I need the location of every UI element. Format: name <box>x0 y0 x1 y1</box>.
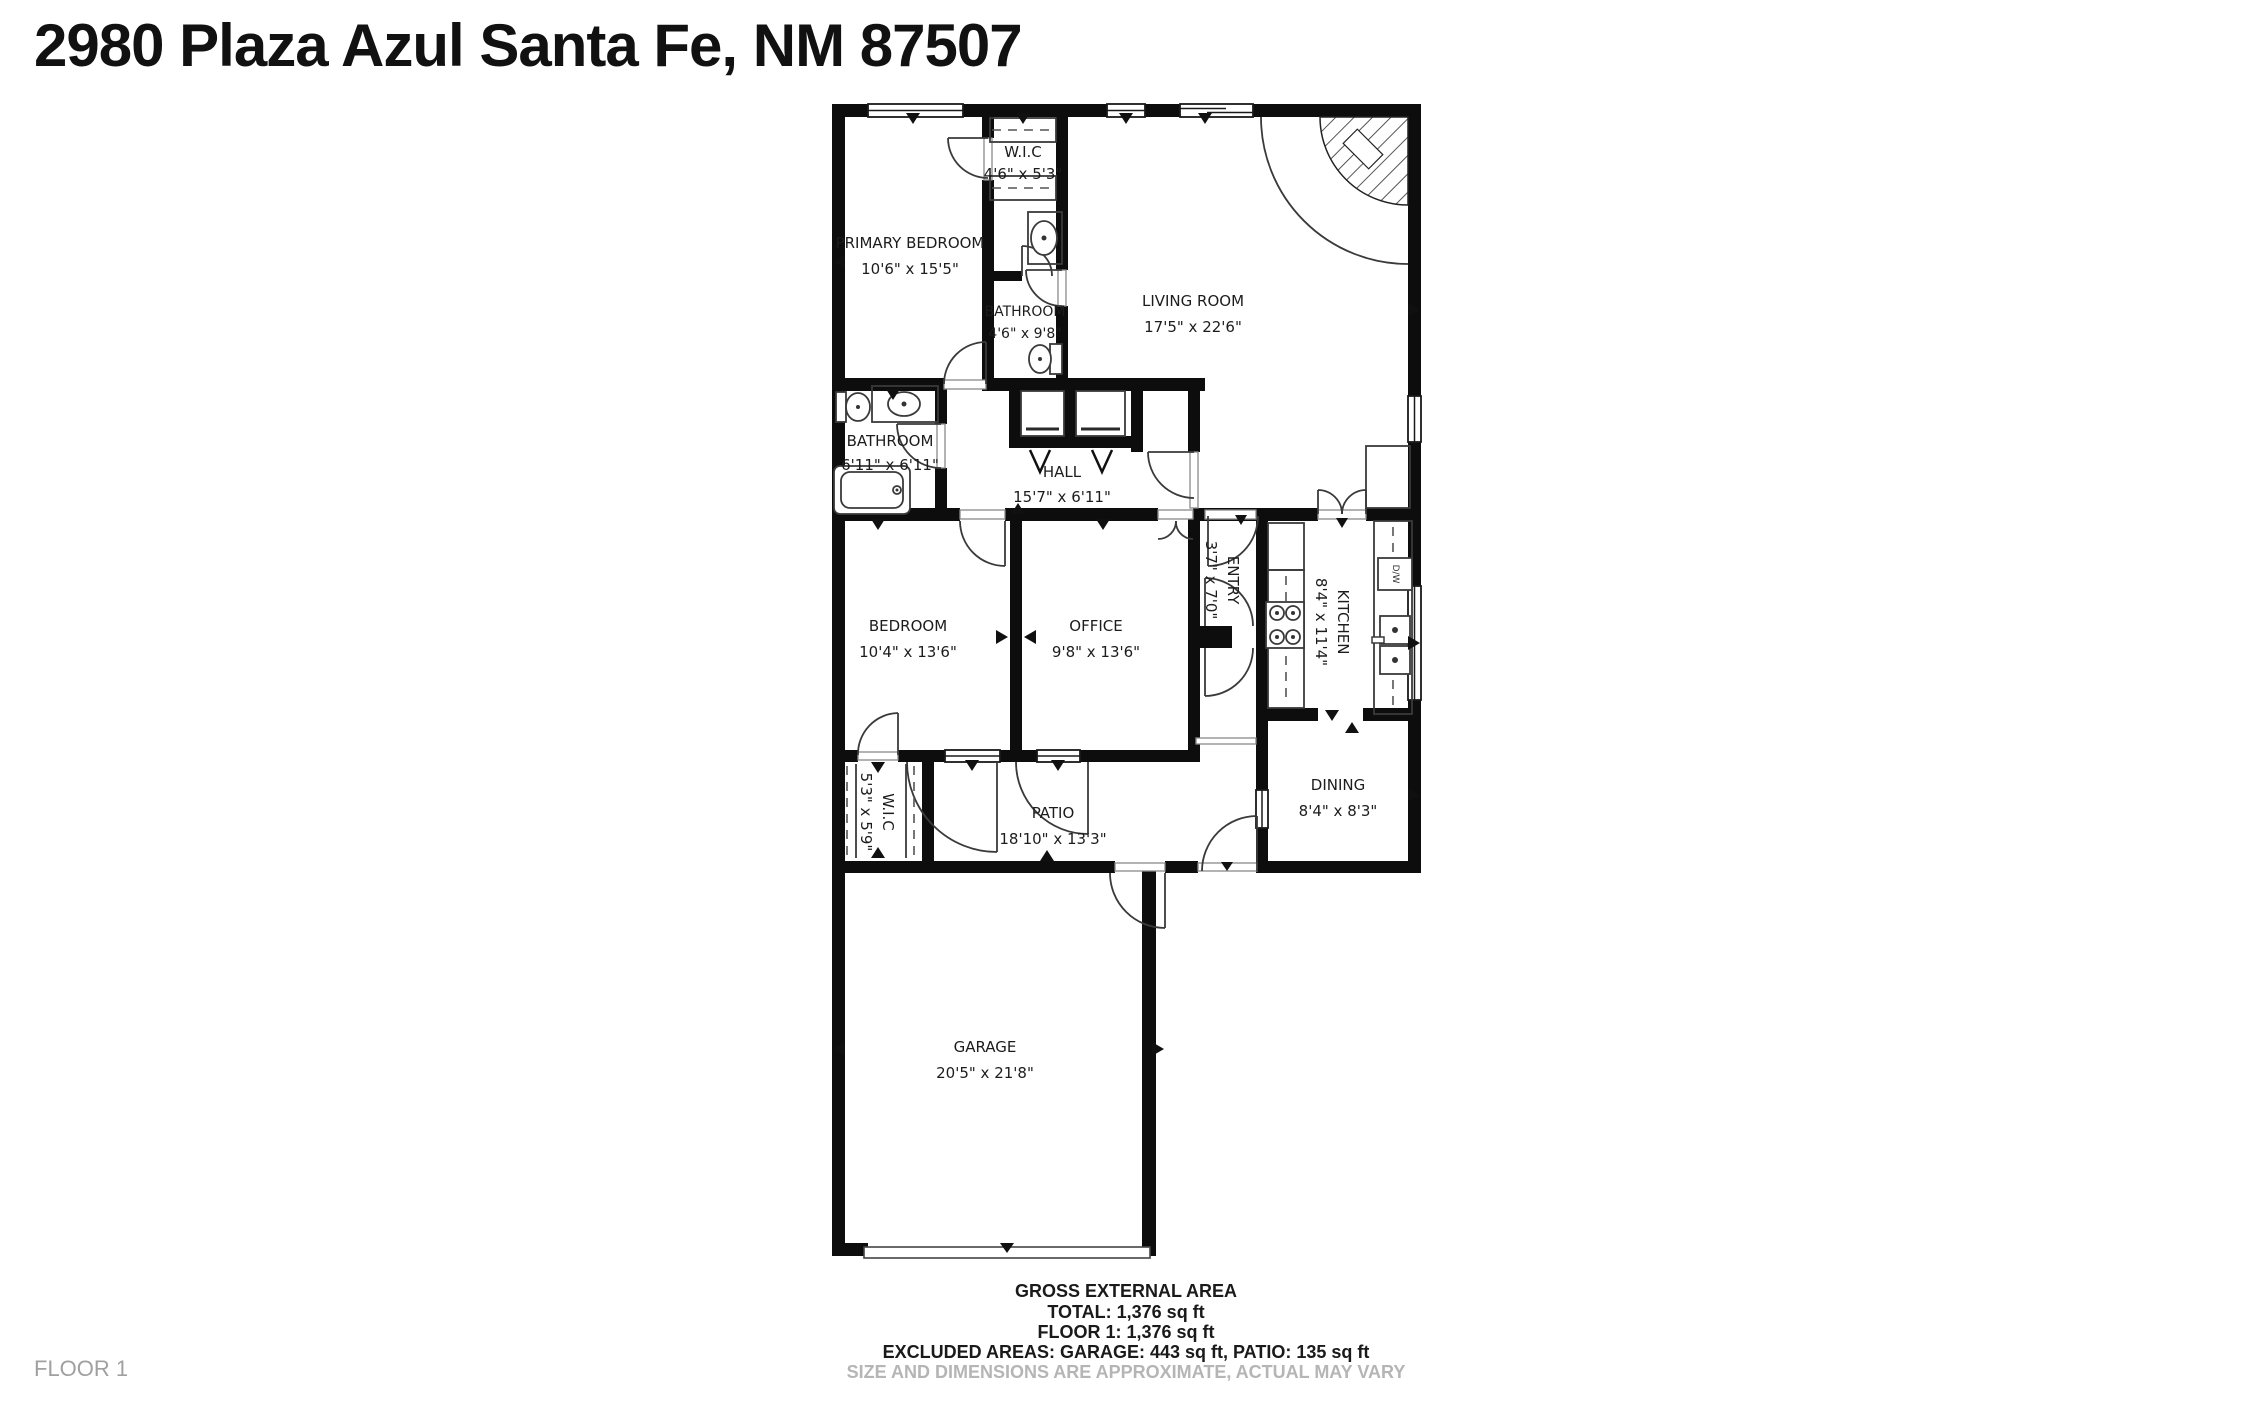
footer-disclaimer: SIZE AND DIMENSIONS ARE APPROXIMATE, ACT… <box>847 1362 1406 1382</box>
room-label-living-room: LIVING ROOM 17'5" x 22'6" <box>1142 292 1244 336</box>
svg-text:8'4" x 8'3": 8'4" x 8'3" <box>1299 802 1378 820</box>
svg-text:GARAGE: GARAGE <box>954 1038 1017 1056</box>
svg-text:OFFICE: OFFICE <box>1069 617 1122 635</box>
window-living-room-top-slider <box>1180 104 1253 117</box>
fireplace-icon <box>1261 117 1408 264</box>
svg-text:BATHROOM: BATHROOM <box>984 304 1065 320</box>
floor-plan-canvas: 2980 Plaza Azul Santa Fe, NM 87507 <box>0 0 2245 1402</box>
svg-text:10'4" x 13'6": 10'4" x 13'6" <box>859 643 957 661</box>
door-bedroom <box>960 521 1005 566</box>
dishwasher-icon: D/W <box>1378 558 1412 590</box>
svg-text:HALL: HALL <box>1043 463 1082 481</box>
fixtures: D/W <box>834 117 1412 1258</box>
room-label-dining: DINING 8'4" x 8'3" <box>1299 776 1378 820</box>
stove-icon <box>1266 602 1304 648</box>
windows <box>868 104 1421 828</box>
svg-text:18'10" x 13'3": 18'10" x 13'3" <box>999 830 1106 848</box>
footer-total: TOTAL: 1,376 sq ft <box>1047 1302 1204 1322</box>
room-label-primary-bedroom: PRIMARY BEDROOM 10'6" x 15'5" <box>836 234 985 278</box>
vanity-sink-icon <box>872 386 938 422</box>
svg-text:17'5" x 22'6": 17'5" x 22'6" <box>1144 318 1242 336</box>
footer-area-summary: GROSS EXTERNAL AREA TOTAL: 1,376 sq ft F… <box>847 1281 1406 1382</box>
svg-text:6'11" x 6'11": 6'11" x 6'11" <box>841 456 939 474</box>
svg-text:20'5" x 21'8": 20'5" x 21'8" <box>936 1064 1034 1082</box>
svg-text:ENTRY: ENTRY <box>1224 556 1242 605</box>
svg-text:W.I.C: W.I.C <box>1004 143 1042 161</box>
door-hall-east <box>1148 452 1194 498</box>
door-garage-entry <box>1110 873 1165 928</box>
property-address-title: 2980 Plaza Azul Santa Fe, NM 87507 <box>34 12 1022 79</box>
door-primary-bedroom <box>944 342 986 384</box>
doors <box>858 138 1366 928</box>
svg-text:5'3" x 5'9": 5'3" x 5'9" <box>857 773 875 852</box>
door-patio-left <box>907 762 997 852</box>
svg-text:15'7" x 6'11": 15'7" x 6'11" <box>1013 488 1111 506</box>
kitchen-sink-icon <box>1372 616 1410 674</box>
svg-text:9'8" x 13'6": 9'8" x 13'6" <box>1052 643 1140 661</box>
footer-excluded-areas: EXCLUDED AREAS: GARAGE: 443 sq ft, PATIO… <box>883 1342 1370 1362</box>
room-label-bathroom-primary: BATHROOM 4'6" x 9'8" <box>984 304 1065 342</box>
dimension-arrows <box>833 113 1420 1253</box>
room-label-bathroom-hall: BATHROOM 6'11" x 6'11" <box>841 432 939 474</box>
door-primary-bathroom <box>1026 270 1062 306</box>
door-office-bifold <box>1158 521 1193 539</box>
svg-text:KITCHEN: KITCHEN <box>1334 590 1352 655</box>
footer-area-heading: GROSS EXTERNAL AREA <box>1015 1281 1237 1301</box>
svg-text:PATIO: PATIO <box>1032 804 1075 822</box>
room-label-garage: GARAGE 20'5" x 21'8" <box>936 1038 1034 1082</box>
svg-text:8'4" x 11'4": 8'4" x 11'4" <box>1312 578 1330 666</box>
floor-plan-page: 2980 Plaza Azul Santa Fe, NM 87507 <box>0 0 2245 1402</box>
svg-text:10'6" x 15'5": 10'6" x 15'5" <box>861 260 959 278</box>
door-patio-right <box>1016 762 1088 834</box>
room-label-bedroom: BEDROOM 10'4" x 13'6" <box>859 617 957 661</box>
svg-text:4'6" x 5'3": 4'6" x 5'3" <box>984 165 1063 183</box>
footer-floor-total: FLOOR 1: 1,376 sq ft <box>1037 1322 1214 1342</box>
svg-text:BATHROOM: BATHROOM <box>847 432 934 450</box>
room-label-office: OFFICE 9'8" x 13'6" <box>1052 617 1140 661</box>
floor-watermark: FLOOR 1 <box>34 1356 128 1381</box>
svg-text:4'6" x 9'8": 4'6" x 9'8" <box>988 326 1061 342</box>
door-wic-lower <box>858 713 898 755</box>
svg-text:3'7" x 7'0": 3'7" x 7'0" <box>1202 541 1220 620</box>
svg-text:D/W: D/W <box>1390 565 1400 584</box>
room-label-hall: HALL 15'7" x 6'11" <box>1013 463 1111 506</box>
svg-text:W.I.C: W.I.C <box>879 793 897 831</box>
refrigerator-icon <box>1366 446 1410 508</box>
svg-text:DINING: DINING <box>1311 776 1365 794</box>
window-living-room-right <box>1408 396 1421 442</box>
room-label-kitchen: KITCHEN 8'4" x 11'4" <box>1312 578 1352 666</box>
svg-text:LIVING ROOM: LIVING ROOM <box>1142 292 1244 310</box>
door-wic-top <box>948 138 988 178</box>
svg-text:PRIMARY BEDROOM: PRIMARY BEDROOM <box>836 234 985 252</box>
toilet-icon <box>836 392 870 422</box>
toilet-icon <box>1029 344 1062 374</box>
room-label-wic-lower: W.I.C 5'3" x 5'9" <box>857 773 897 852</box>
room-label-wic-top: W.I.C 4'6" x 5'3" <box>984 143 1063 183</box>
svg-text:BEDROOM: BEDROOM <box>869 617 947 635</box>
